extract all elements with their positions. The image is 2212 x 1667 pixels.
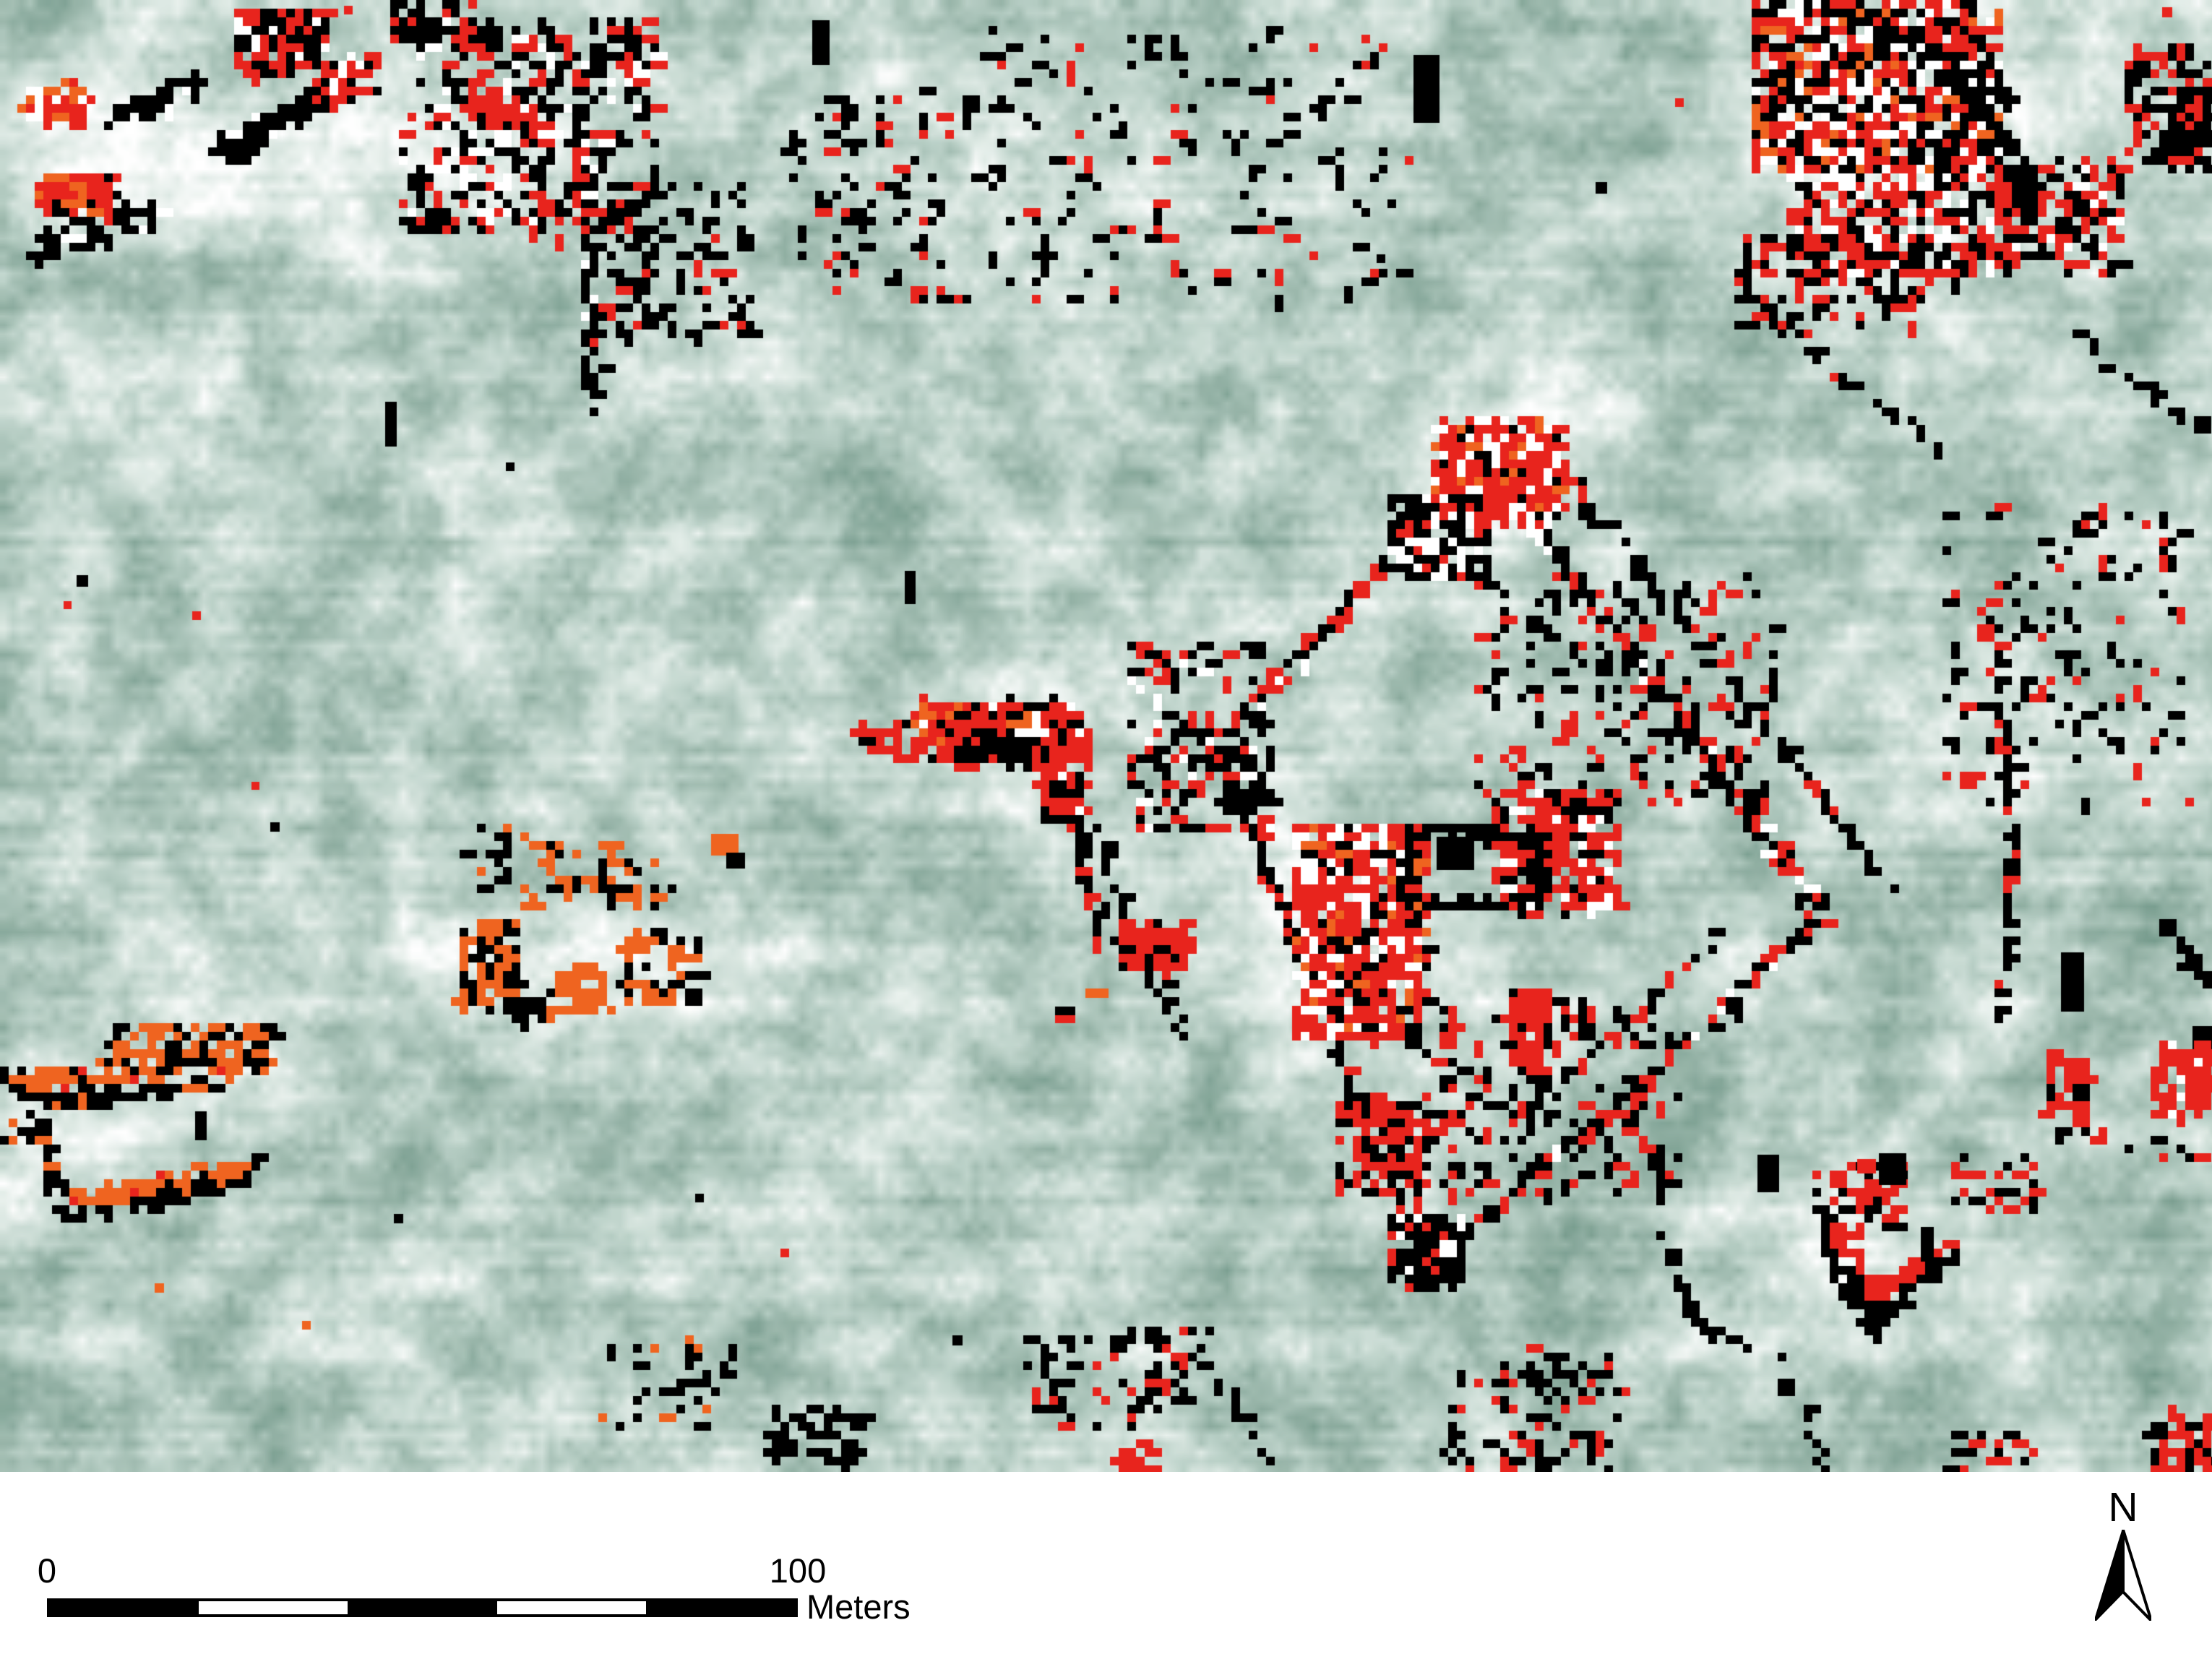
scale-bar-segment — [50, 1601, 199, 1614]
scale-bar-unit-label: Meters — [806, 1590, 911, 1624]
scale-bar-segment — [348, 1601, 496, 1614]
scale-bar-end-label: 100 — [770, 1554, 826, 1588]
north-label: N — [2108, 1487, 2138, 1528]
scale-bar-segment — [646, 1601, 795, 1614]
scale-bar-start-label: 0 — [38, 1554, 56, 1588]
north-arrow-right-half — [2123, 1530, 2151, 1621]
scale-bar-segment — [199, 1601, 348, 1614]
scale-bar-segment — [497, 1601, 646, 1614]
north-arrow-icon — [2095, 1530, 2151, 1621]
geophysical-survey-raster-map — [0, 0, 2212, 1472]
scale-bar — [47, 1598, 798, 1617]
north-arrow-left-half — [2095, 1530, 2123, 1621]
